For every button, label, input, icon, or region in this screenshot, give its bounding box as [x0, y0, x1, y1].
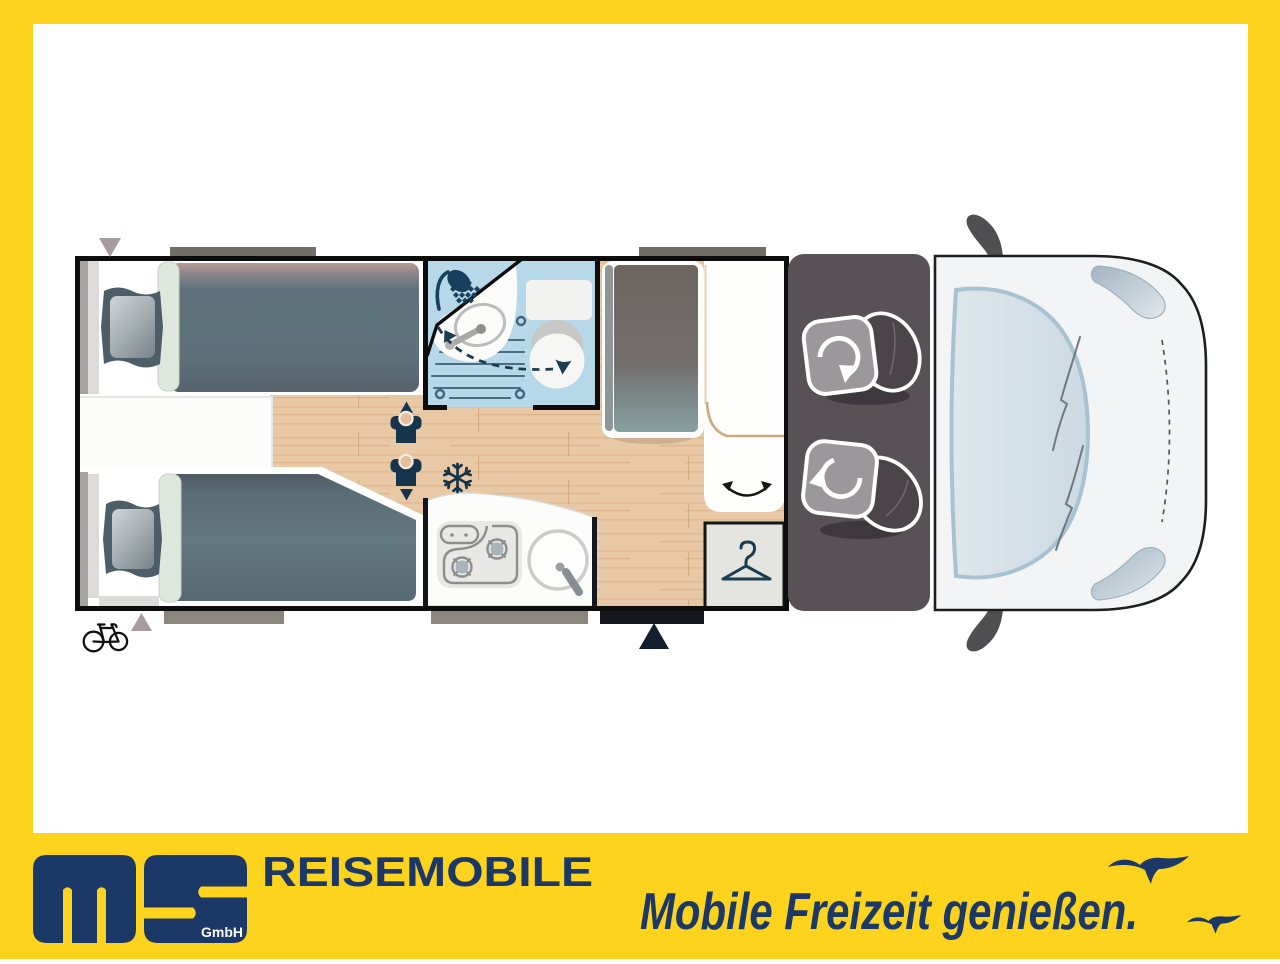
svg-text:GmbH: GmbH — [201, 924, 243, 940]
svg-text:REISEMOBILE: REISEMOBILE — [262, 848, 593, 895]
svg-text:Mobile Freizeit genießen.: Mobile Freizeit genießen. — [640, 883, 1138, 941]
